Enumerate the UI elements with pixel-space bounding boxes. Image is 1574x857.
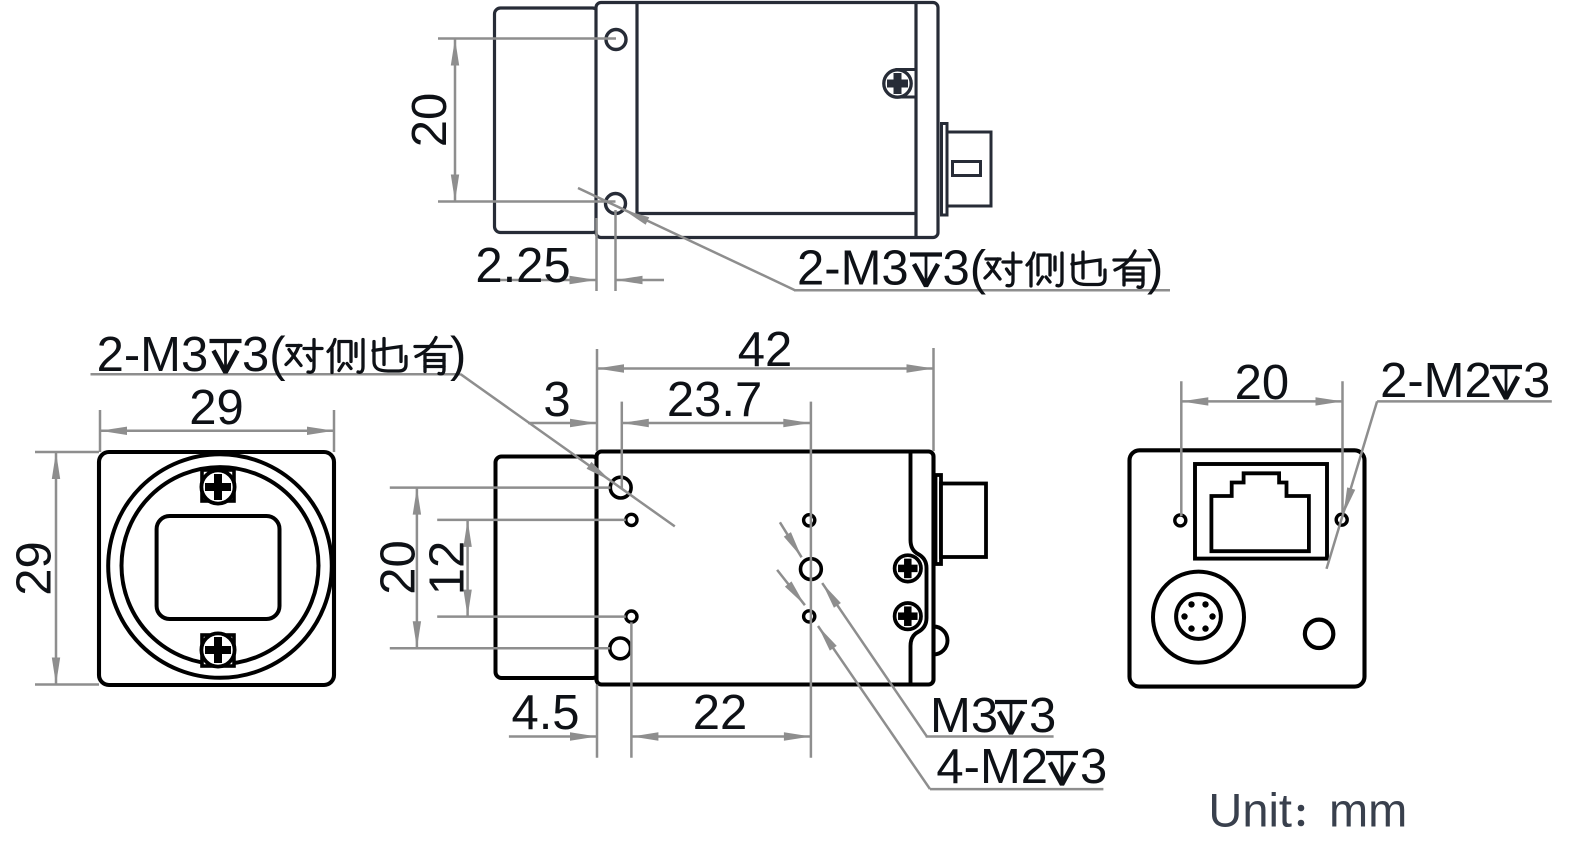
svg-text:3(: 3( <box>943 242 987 296</box>
svg-text:3: 3 <box>1029 689 1056 743</box>
svg-text:2-M2: 2-M2 <box>1380 354 1492 408</box>
svg-text:4.5: 4.5 <box>511 686 579 740</box>
svg-text:3: 3 <box>1080 740 1107 794</box>
svg-text:Unit: Unit <box>1208 783 1292 836</box>
svg-text:3: 3 <box>543 373 570 427</box>
svg-text:2-M3: 2-M3 <box>97 328 209 382</box>
svg-text:): ) <box>1147 242 1163 296</box>
svg-text:3: 3 <box>1523 354 1550 408</box>
svg-text:12: 12 <box>421 541 475 596</box>
svg-text:2-M3: 2-M3 <box>797 242 909 296</box>
svg-text:29: 29 <box>8 541 62 596</box>
svg-text:M3: M3 <box>930 689 998 743</box>
svg-text:): ) <box>450 328 466 382</box>
svg-text:20: 20 <box>1235 356 1290 410</box>
svg-text:23.7: 23.7 <box>667 373 762 427</box>
svg-text:29: 29 <box>189 381 244 435</box>
svg-text:42: 42 <box>738 323 793 377</box>
svg-text:4-M2: 4-M2 <box>936 740 1048 794</box>
svg-text:20: 20 <box>403 93 457 148</box>
svg-text:3(: 3( <box>242 328 286 382</box>
svg-text:2.25: 2.25 <box>475 239 570 293</box>
svg-text:20: 20 <box>372 540 426 595</box>
svg-text:22: 22 <box>693 686 748 740</box>
svg-text:mm: mm <box>1329 783 1407 836</box>
